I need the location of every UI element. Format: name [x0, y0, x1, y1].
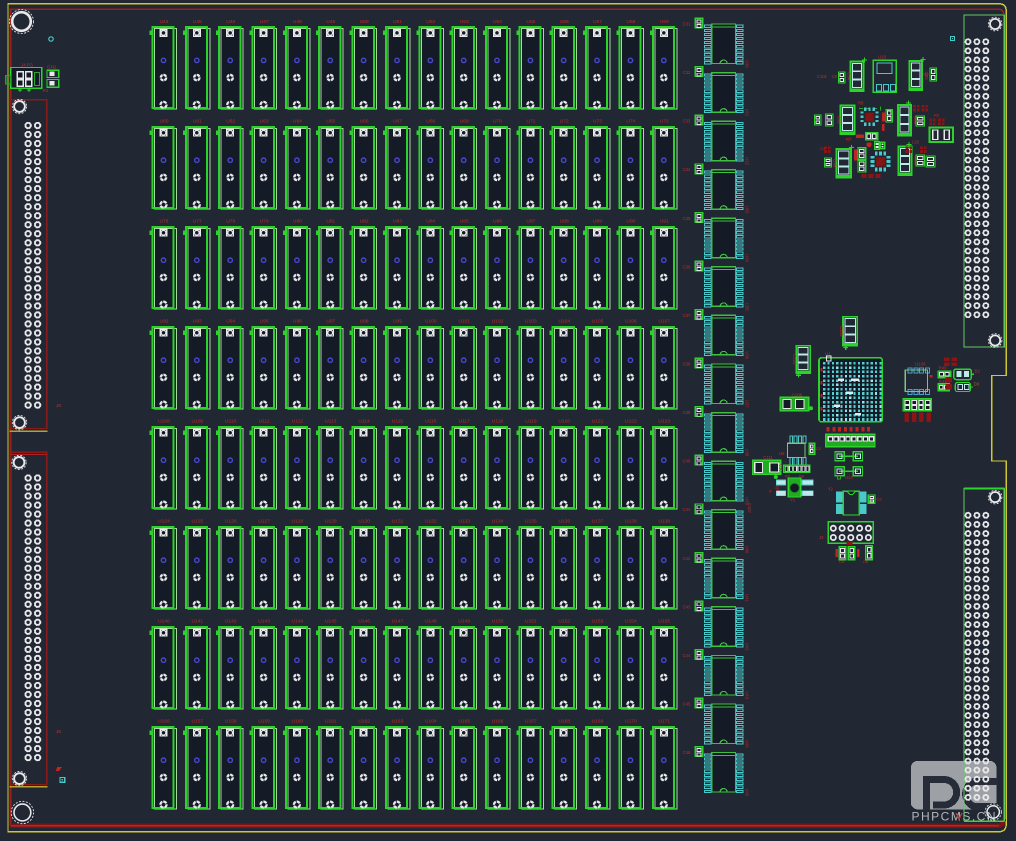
- svg-text:C40: C40: [683, 459, 691, 464]
- svg-text:U93: U93: [193, 319, 202, 325]
- svg-text:U84: U84: [426, 219, 435, 225]
- svg-text:U35: U35: [745, 303, 750, 311]
- svg-text:C46: C46: [683, 750, 691, 755]
- svg-text:C33: C33: [683, 119, 691, 124]
- svg-text:U168: U168: [558, 719, 570, 725]
- svg-text:C45: C45: [683, 702, 691, 707]
- svg-text:U149: U149: [458, 619, 470, 625]
- svg-text:Y2: Y2: [828, 487, 834, 492]
- svg-text:U61: U61: [193, 119, 202, 125]
- svg-text:U163: U163: [392, 719, 404, 725]
- svg-text:U102: U102: [492, 319, 504, 325]
- svg-text:U123: U123: [658, 419, 670, 425]
- svg-text:U66: U66: [360, 119, 369, 125]
- svg-text:U33: U33: [745, 206, 750, 214]
- svg-text:U142: U142: [225, 619, 237, 625]
- svg-text:C10: C10: [778, 464, 783, 472]
- svg-text:U89: U89: [593, 219, 602, 225]
- svg-text:U90: U90: [626, 219, 635, 225]
- svg-text:C88: C88: [837, 116, 842, 125]
- svg-text:C39: C39: [683, 410, 691, 415]
- svg-text:U1: U1: [825, 351, 831, 356]
- svg-text:U38: U38: [745, 449, 750, 457]
- svg-text:C5: C5: [839, 559, 845, 564]
- svg-text:C110: C110: [792, 354, 797, 365]
- svg-text:U131: U131: [392, 519, 404, 525]
- svg-text:U119: U119: [525, 419, 537, 425]
- svg-text:C109: C109: [839, 326, 844, 337]
- svg-text:U86: U86: [493, 219, 502, 225]
- svg-text:U45: U45: [193, 19, 202, 25]
- svg-text:U45: U45: [745, 789, 750, 797]
- svg-text:U122: U122: [625, 419, 637, 425]
- svg-text:U147: U147: [392, 619, 404, 625]
- svg-text:U114: U114: [358, 419, 370, 425]
- svg-text:U171: U171: [658, 719, 670, 725]
- svg-text:U37: U37: [745, 400, 750, 408]
- svg-text:U49: U49: [326, 19, 335, 25]
- svg-text:U43: U43: [745, 691, 750, 699]
- svg-text:C2: C2: [816, 446, 822, 451]
- svg-text:C1: C1: [820, 146, 826, 151]
- svg-text:U40: U40: [745, 546, 750, 554]
- svg-text:U41: U41: [745, 594, 750, 602]
- svg-text:C6: C6: [863, 559, 869, 564]
- svg-text:R8: R8: [858, 101, 864, 106]
- svg-text:U106: U106: [625, 319, 637, 325]
- svg-text:U116: U116: [425, 419, 437, 425]
- svg-text:C31: C31: [683, 22, 691, 27]
- svg-text:J6: J6: [56, 403, 61, 409]
- svg-text:J4 P3: J4 P3: [21, 63, 33, 68]
- svg-text:U30: U30: [745, 60, 750, 68]
- svg-text:U76: U76: [160, 219, 169, 225]
- svg-text:U105: U105: [592, 319, 604, 325]
- svg-text:U97: U97: [326, 319, 335, 325]
- svg-text:U128: U128: [292, 519, 304, 525]
- svg-text:C84: C84: [847, 72, 852, 81]
- svg-text:U48: U48: [293, 19, 302, 25]
- svg-text:C34: C34: [683, 167, 691, 172]
- svg-text:U44: U44: [160, 19, 169, 25]
- svg-text:U158: U158: [225, 719, 237, 725]
- svg-text:U104: U104: [558, 319, 570, 325]
- svg-text:U46: U46: [226, 19, 235, 25]
- svg-text:U34: U34: [745, 254, 750, 262]
- svg-text:U87: U87: [526, 219, 535, 225]
- svg-text:C32: C32: [683, 70, 691, 75]
- svg-text:U151: U151: [525, 619, 537, 625]
- svg-text:U50: U50: [360, 19, 369, 25]
- svg-text:L10: L10: [912, 140, 920, 145]
- svg-text:U165: U165: [458, 719, 470, 725]
- svg-text:U118: U118: [492, 419, 504, 425]
- svg-text:U136: U136: [558, 519, 570, 525]
- svg-text:U82: U82: [360, 219, 369, 225]
- svg-text:C43: C43: [683, 604, 691, 609]
- svg-text:U125: U125: [191, 519, 203, 525]
- svg-text:C107: C107: [747, 503, 752, 514]
- svg-text:U157: U157: [191, 719, 203, 725]
- svg-text:U101: U101: [458, 319, 470, 325]
- svg-text:U170: U170: [625, 719, 637, 725]
- svg-text:U124: U124: [158, 519, 170, 525]
- svg-text:U107: U107: [658, 319, 670, 325]
- svg-text:R2: R2: [43, 88, 49, 93]
- svg-text:U133: U133: [458, 519, 470, 525]
- svg-text:U144: U144: [292, 619, 304, 625]
- svg-text:U88: U88: [560, 219, 569, 225]
- svg-text:U67: U67: [393, 119, 402, 125]
- svg-text:U108: U108: [158, 419, 170, 425]
- svg-text:U74: U74: [626, 119, 635, 125]
- svg-text:C36: C36: [683, 264, 691, 269]
- svg-text:U143: U143: [258, 619, 270, 625]
- svg-text:U58: U58: [626, 19, 635, 25]
- svg-text:C44: C44: [683, 653, 691, 658]
- svg-text:R7: R7: [846, 137, 852, 142]
- svg-text:GN1: GN1: [47, 65, 57, 70]
- svg-text:U83: U83: [393, 219, 402, 225]
- svg-text:U146: U146: [358, 619, 370, 625]
- svg-text:U96: U96: [293, 319, 302, 325]
- svg-text:U109: U109: [191, 419, 203, 425]
- svg-text:R40: R40: [939, 365, 947, 370]
- svg-text:U81: U81: [326, 219, 335, 225]
- svg-text:U72: U72: [560, 119, 569, 125]
- svg-text:U126: U126: [225, 519, 237, 525]
- svg-text:U141: U141: [191, 619, 203, 625]
- svg-text:C37: C37: [683, 313, 691, 318]
- svg-text:U54: U54: [493, 19, 502, 25]
- svg-text:Y1: Y1: [790, 498, 796, 503]
- svg-text:U135: U135: [525, 519, 537, 525]
- svg-text:D2: D2: [975, 369, 981, 374]
- svg-text:U110: U110: [225, 419, 237, 425]
- svg-text:C111: C111: [763, 455, 773, 460]
- svg-text:U56: U56: [560, 19, 569, 25]
- svg-text:U111: U111: [259, 419, 270, 425]
- svg-text:U9: U9: [779, 451, 785, 456]
- svg-text:U121: U121: [592, 419, 604, 425]
- svg-text:U32: U32: [745, 157, 750, 165]
- svg-text:U145: U145: [325, 619, 337, 625]
- svg-text:U138: U138: [625, 519, 637, 525]
- svg-text:U51: U51: [393, 19, 402, 25]
- svg-text:U152: U152: [558, 619, 570, 625]
- svg-text:U166: U166: [492, 719, 504, 725]
- svg-text:U129: U129: [325, 519, 337, 525]
- svg-text:U117: U117: [459, 419, 471, 425]
- svg-text:U79: U79: [260, 219, 269, 225]
- svg-text:U68: U68: [426, 119, 435, 125]
- svg-text:U91: U91: [660, 219, 669, 225]
- svg-text:U153: U153: [592, 619, 604, 625]
- svg-text:U134: U134: [492, 519, 504, 525]
- svg-text:U31: U31: [745, 109, 750, 117]
- svg-text:C95: C95: [833, 159, 838, 168]
- svg-text:U112: U112: [292, 419, 304, 425]
- svg-text:U169: U169: [592, 719, 604, 725]
- svg-text:C8: C8: [832, 74, 838, 79]
- svg-text:C38: C38: [683, 362, 691, 367]
- svg-text:U78: U78: [226, 219, 235, 225]
- svg-text:U60: U60: [160, 119, 169, 125]
- svg-text:U160: U160: [292, 719, 304, 725]
- svg-text:U148: U148: [425, 619, 437, 625]
- svg-text:U155: U155: [658, 619, 670, 625]
- svg-text:J3: J3: [819, 535, 824, 540]
- svg-text:U106: U106: [915, 362, 926, 367]
- svg-text:U65: U65: [326, 119, 335, 125]
- svg-text:C41: C41: [683, 507, 691, 512]
- svg-text:J5: J5: [56, 729, 61, 735]
- svg-text:U42: U42: [745, 643, 750, 651]
- svg-text:U156: U156: [158, 719, 170, 725]
- svg-text:U57: U57: [593, 19, 602, 25]
- svg-text:C3: C3: [877, 497, 883, 502]
- svg-text:U130: U130: [358, 519, 370, 525]
- svg-text:U159: U159: [258, 719, 270, 725]
- svg-text:U77: U77: [193, 219, 202, 225]
- svg-text:U140: U140: [158, 619, 170, 625]
- svg-text:C35: C35: [683, 216, 691, 221]
- svg-text:U80: U80: [293, 219, 302, 225]
- svg-text:U137: U137: [592, 519, 604, 525]
- svg-text:U95: U95: [260, 319, 269, 325]
- svg-text:U150: U150: [492, 619, 504, 625]
- svg-text:U94: U94: [226, 319, 235, 325]
- svg-text:U167: U167: [525, 719, 537, 725]
- svg-text:U164: U164: [425, 719, 437, 725]
- svg-text:U70: U70: [493, 119, 502, 125]
- svg-text:U113: U113: [325, 419, 337, 425]
- svg-text:U103: U103: [525, 319, 537, 325]
- svg-text:U100: U100: [425, 319, 437, 325]
- svg-text:U63: U63: [260, 119, 269, 125]
- svg-text:U115: U115: [392, 419, 404, 425]
- svg-text:Q1: Q1: [775, 486, 780, 492]
- svg-text:U44: U44: [745, 740, 750, 748]
- svg-text:U64: U64: [293, 119, 302, 125]
- svg-text:U47: U47: [260, 19, 269, 25]
- svg-text:U75: U75: [660, 119, 669, 125]
- svg-text:C42: C42: [683, 556, 691, 561]
- svg-text:U139: U139: [658, 519, 670, 525]
- svg-text:U85: U85: [460, 219, 469, 225]
- svg-text:U71: U71: [526, 119, 535, 125]
- svg-text:U69: U69: [460, 119, 469, 125]
- svg-text:U36: U36: [745, 351, 750, 359]
- svg-text:U120: U120: [558, 419, 570, 425]
- svg-text:U154: U154: [625, 619, 637, 625]
- svg-text:D3: D3: [974, 382, 980, 387]
- svg-text:U52: U52: [426, 19, 435, 25]
- svg-text:U10: U10: [878, 55, 887, 60]
- svg-text:U73: U73: [593, 119, 602, 125]
- svg-text:U127: U127: [258, 519, 270, 525]
- svg-text:U162: U162: [358, 719, 370, 725]
- svg-text:C108: C108: [792, 392, 803, 397]
- svg-text:U98: U98: [360, 319, 369, 325]
- svg-text:C101: C101: [817, 74, 828, 79]
- svg-text:U55: U55: [526, 19, 535, 25]
- svg-text:R0: R0: [934, 113, 940, 118]
- svg-text:U62: U62: [226, 119, 235, 125]
- svg-text:U132: U132: [425, 519, 437, 525]
- svg-text:U13: U13: [845, 475, 853, 480]
- svg-text:R9: R9: [923, 72, 929, 77]
- svg-text:U99: U99: [393, 319, 402, 325]
- svg-text:U53: U53: [460, 19, 469, 25]
- svg-text:U59: U59: [660, 19, 669, 25]
- svg-text:U161: U161: [325, 719, 337, 725]
- svg-text:U92: U92: [160, 319, 169, 325]
